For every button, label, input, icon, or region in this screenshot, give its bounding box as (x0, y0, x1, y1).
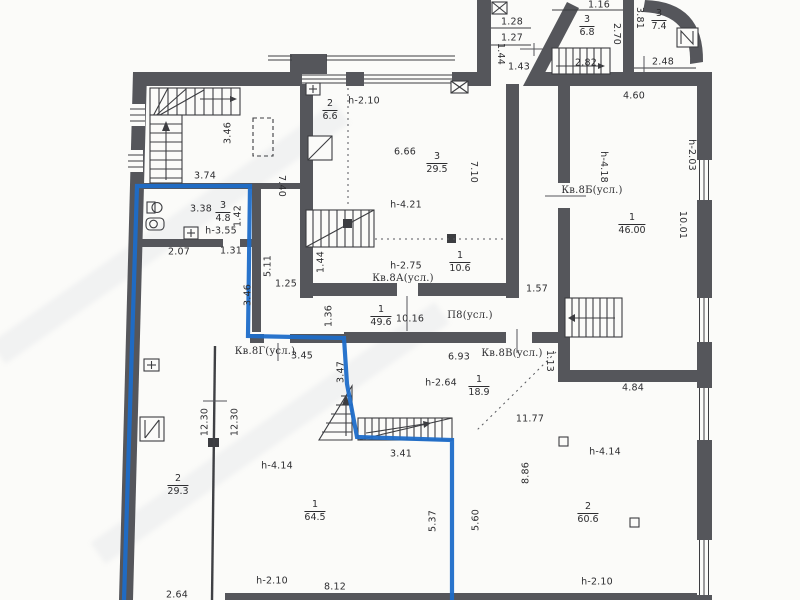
dim-label: 1.44 (495, 43, 505, 65)
height-label: h-2.10 (256, 576, 288, 586)
dim-label: 1.43 (508, 62, 530, 72)
dim-label: 5.60 (471, 509, 481, 531)
duct-dashed-box (253, 118, 273, 156)
apartment-label: Кв.8Б(усл.) (561, 186, 622, 196)
plan-drawing (0, 0, 800, 600)
dim-label: 5.11 (263, 255, 273, 277)
dim-label: 12.30 (230, 408, 240, 436)
dim-label: 11.77 (516, 414, 544, 424)
dim-label: 1.13 (544, 350, 554, 372)
dim-label: 1.36 (324, 305, 334, 327)
height-label: h-2.10 (348, 96, 380, 106)
height-label: h-2.75 (390, 261, 422, 271)
apartment-label: Кв.8В(усл.) (481, 349, 542, 359)
small-square-marker (559, 437, 568, 446)
sink-icon (147, 202, 162, 213)
height-label: h-4.21 (390, 200, 422, 210)
small-square-marker (630, 518, 639, 527)
dim-label: 3.47 (336, 361, 346, 383)
height-label: h-2.64 (425, 378, 457, 388)
dim-label: 3.38 (190, 204, 212, 214)
plus-box-icon (184, 227, 198, 239)
n-box-icon (677, 28, 698, 47)
dim-label: 4.84 (622, 383, 644, 393)
room-number-area: 164.5 (304, 500, 325, 522)
diagonal-box-icon (308, 136, 332, 160)
dim-label: 6.93 (448, 352, 470, 362)
dim-label: 3.46 (243, 284, 253, 306)
room-number-area: 149.6 (370, 305, 391, 327)
x-box-icon (492, 2, 507, 14)
room-number-area: 36.8 (579, 15, 594, 37)
dim-label: 1.25 (275, 279, 297, 289)
floorplan-scan: 1.16 1.28 1.27 1.44 1.43 2.82 2.70 3.81 … (0, 0, 800, 600)
dim-label: 2.82 (575, 58, 597, 68)
dim-label: 1.42 (233, 205, 243, 227)
dim-label: 3.46 (223, 122, 233, 144)
dim-label: 3.81 (634, 7, 644, 29)
height-label: h-2.03 (686, 139, 696, 171)
dim-label: 1.27 (501, 33, 523, 43)
room-number-area: 118.9 (468, 375, 489, 397)
dim-label: 4.60 (623, 91, 645, 101)
dim-label: 2.70 (611, 23, 621, 45)
dim-label: 1.28 (501, 17, 523, 27)
dim-label: 7.10 (468, 161, 478, 183)
room-number-area: 110.6 (449, 251, 470, 273)
dim-label: 1.44 (316, 251, 326, 273)
room-number-area: 37.4 (651, 9, 666, 31)
plus-box-icon (144, 359, 159, 371)
height-label: h-2.10 (581, 577, 613, 587)
dim-label: 1.31 (220, 246, 242, 256)
stair-center-room (306, 210, 374, 247)
stair-main-lower-flight (150, 115, 182, 183)
dim-label: 3.45 (291, 351, 313, 361)
room-number-area: 146.00 (618, 213, 645, 235)
room-number-area: 26.6 (322, 99, 337, 121)
niche-box-icon (140, 417, 164, 441)
dim-label: 2.48 (652, 57, 674, 67)
dim-label: 12.30 (200, 408, 210, 436)
room-number-area: 229.3 (167, 474, 188, 496)
height-label: h-4.14 (261, 461, 293, 471)
dim-label: 3.74 (194, 171, 216, 181)
plus-box-icon (306, 83, 320, 95)
apartment-label: Кв.8А(усл.) (372, 274, 434, 284)
dim-label: 10.01 (677, 211, 687, 239)
apartment-label: Кв.8Г(усл.) (235, 347, 296, 357)
dim-label: 2.07 (168, 247, 190, 257)
dim-label: 8.86 (521, 462, 531, 484)
height-label: h-3.55 (205, 226, 237, 236)
dim-label: 10.16 (396, 314, 424, 324)
height-label: h-4.18 (598, 151, 608, 183)
apartment-label: П8(усл.) (447, 311, 493, 321)
height-label: h-4.14 (589, 447, 621, 457)
dim-label: 7.40 (276, 175, 286, 197)
top-wall-window (302, 75, 452, 83)
dim-label: 3.41 (390, 449, 412, 459)
room-number-area: 34.8 (215, 201, 230, 223)
x-box-icon (451, 81, 468, 93)
dim-label: 6.66 (394, 147, 416, 157)
dim-label: 1.57 (526, 284, 548, 294)
dim-label: 1.16 (588, 0, 610, 10)
room-number-area: 260.6 (577, 502, 598, 524)
dim-label: 8.12 (324, 582, 346, 592)
dim-label: 5.37 (428, 510, 438, 532)
toilet-icon (146, 218, 164, 230)
stair-right-apartment (565, 298, 622, 337)
room-number-area: 329.5 (426, 152, 447, 174)
dim-label: 2.64 (166, 590, 188, 600)
